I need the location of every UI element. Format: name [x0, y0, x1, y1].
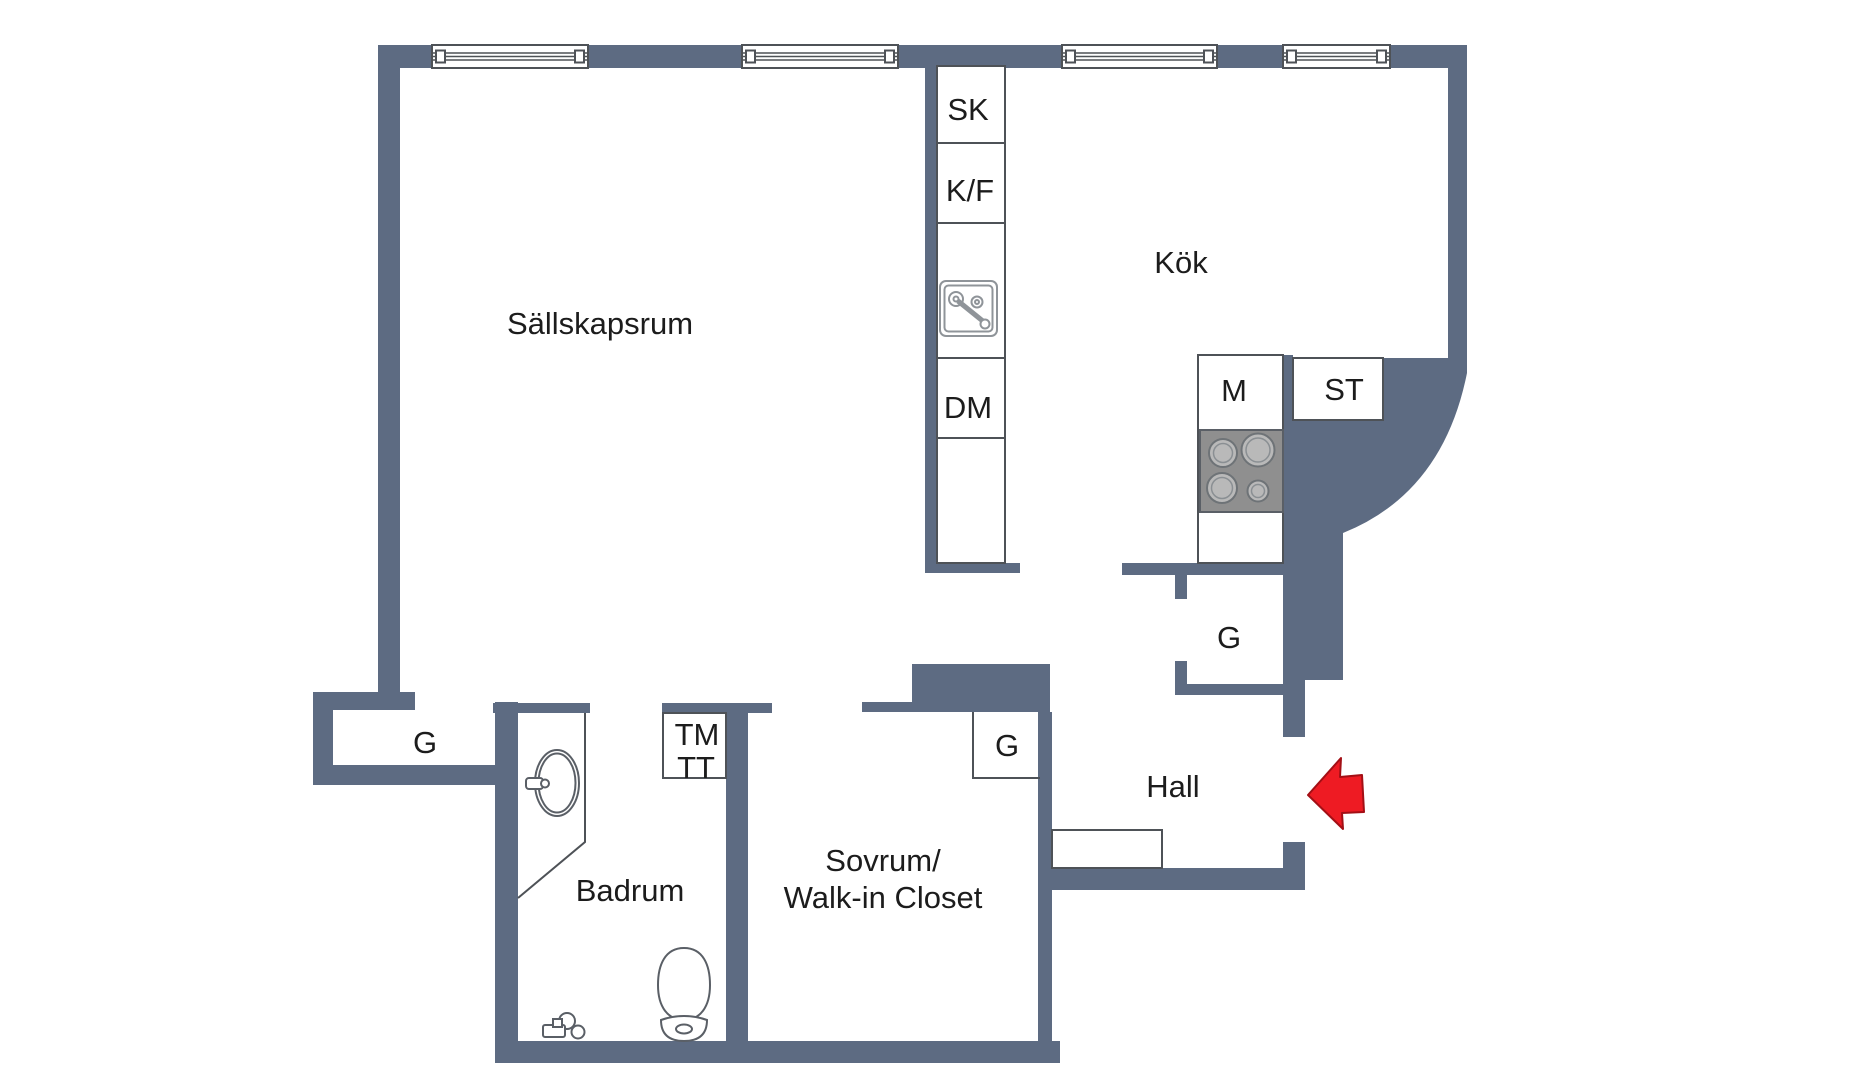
wall-left-exterior: [378, 66, 400, 692]
floor-plan: Sällskapsrum Kök Hall Badrum Sovrum/ Wal…: [0, 0, 1876, 1092]
wall-kitchen-wardrobe-bottom: [1175, 684, 1285, 695]
cabinet-label-tm: TM: [675, 717, 720, 752]
wall-kitchen-wardrobe-top: [1122, 563, 1285, 575]
wall-right-exterior: [1448, 66, 1467, 373]
hall-closet: [1052, 830, 1162, 868]
shower-mixer-icon: [543, 1013, 585, 1039]
wall-hall-entry-stub: [1283, 842, 1305, 870]
window: [432, 45, 588, 68]
wall-hall-bottom: [1038, 868, 1305, 890]
wall-bedroom-hall-block: [912, 664, 1050, 712]
wall-entry-wardrobe-bottom: [313, 765, 512, 785]
wall-kitchen-counter-end: [925, 563, 1020, 573]
wall-laundry-top: [662, 703, 772, 713]
wardrobe-label-entry: G: [413, 725, 437, 760]
room-label-kitchen: Kök: [1154, 245, 1208, 280]
toilet-icon: [658, 948, 710, 1041]
wall-top-kitchen-junction: [898, 45, 1062, 68]
window: [1283, 45, 1390, 68]
wall-bathroom-left: [495, 702, 518, 1063]
wall-m-st-divider: [1283, 355, 1293, 420]
wall-kitchen-wardrobe-stub: [1175, 575, 1187, 599]
stove-icon: [1200, 430, 1283, 512]
cabinet-label-kf: K/F: [946, 173, 994, 208]
bathroom-sink-icon: [526, 750, 579, 816]
wardrobe-label-kitchen: G: [1217, 620, 1241, 655]
window: [742, 45, 898, 68]
kitchen-sink-icon: [940, 281, 997, 336]
cabinet-label-st: ST: [1324, 372, 1364, 407]
window: [1062, 45, 1217, 68]
wall-bathroom-top: [493, 703, 590, 713]
wall-top-segment-2: [1217, 45, 1283, 68]
wall-bathroom-bedroom-divider: [726, 703, 748, 1041]
wall-bedroom-top: [862, 702, 912, 712]
cabinet-label-dm: DM: [944, 390, 992, 425]
room-label-hall: Hall: [1146, 769, 1199, 804]
wall-top-left-corner: [378, 45, 433, 68]
wardrobe-label-bedroom: G: [995, 728, 1019, 763]
cabinet-label-m: M: [1221, 373, 1247, 408]
room-label-bathroom: Badrum: [576, 873, 685, 908]
wall-top-right-corner: [1390, 45, 1467, 68]
wall-bottom-exterior: [495, 1041, 1060, 1063]
cabinet-label-sk: SK: [947, 92, 989, 127]
cabinet-label-tt: TT: [677, 750, 715, 785]
entrance-arrow-icon: [1308, 758, 1364, 829]
room-label-bedroom-line1: Sovrum/: [825, 843, 941, 878]
wall-kitchen-counter-spine: [925, 66, 937, 573]
wall-top-segment-1: [588, 45, 742, 68]
room-label-livingroom: Sällskapsrum: [507, 306, 693, 341]
room-label-bedroom-line2: Walk-in Closet: [784, 880, 983, 915]
